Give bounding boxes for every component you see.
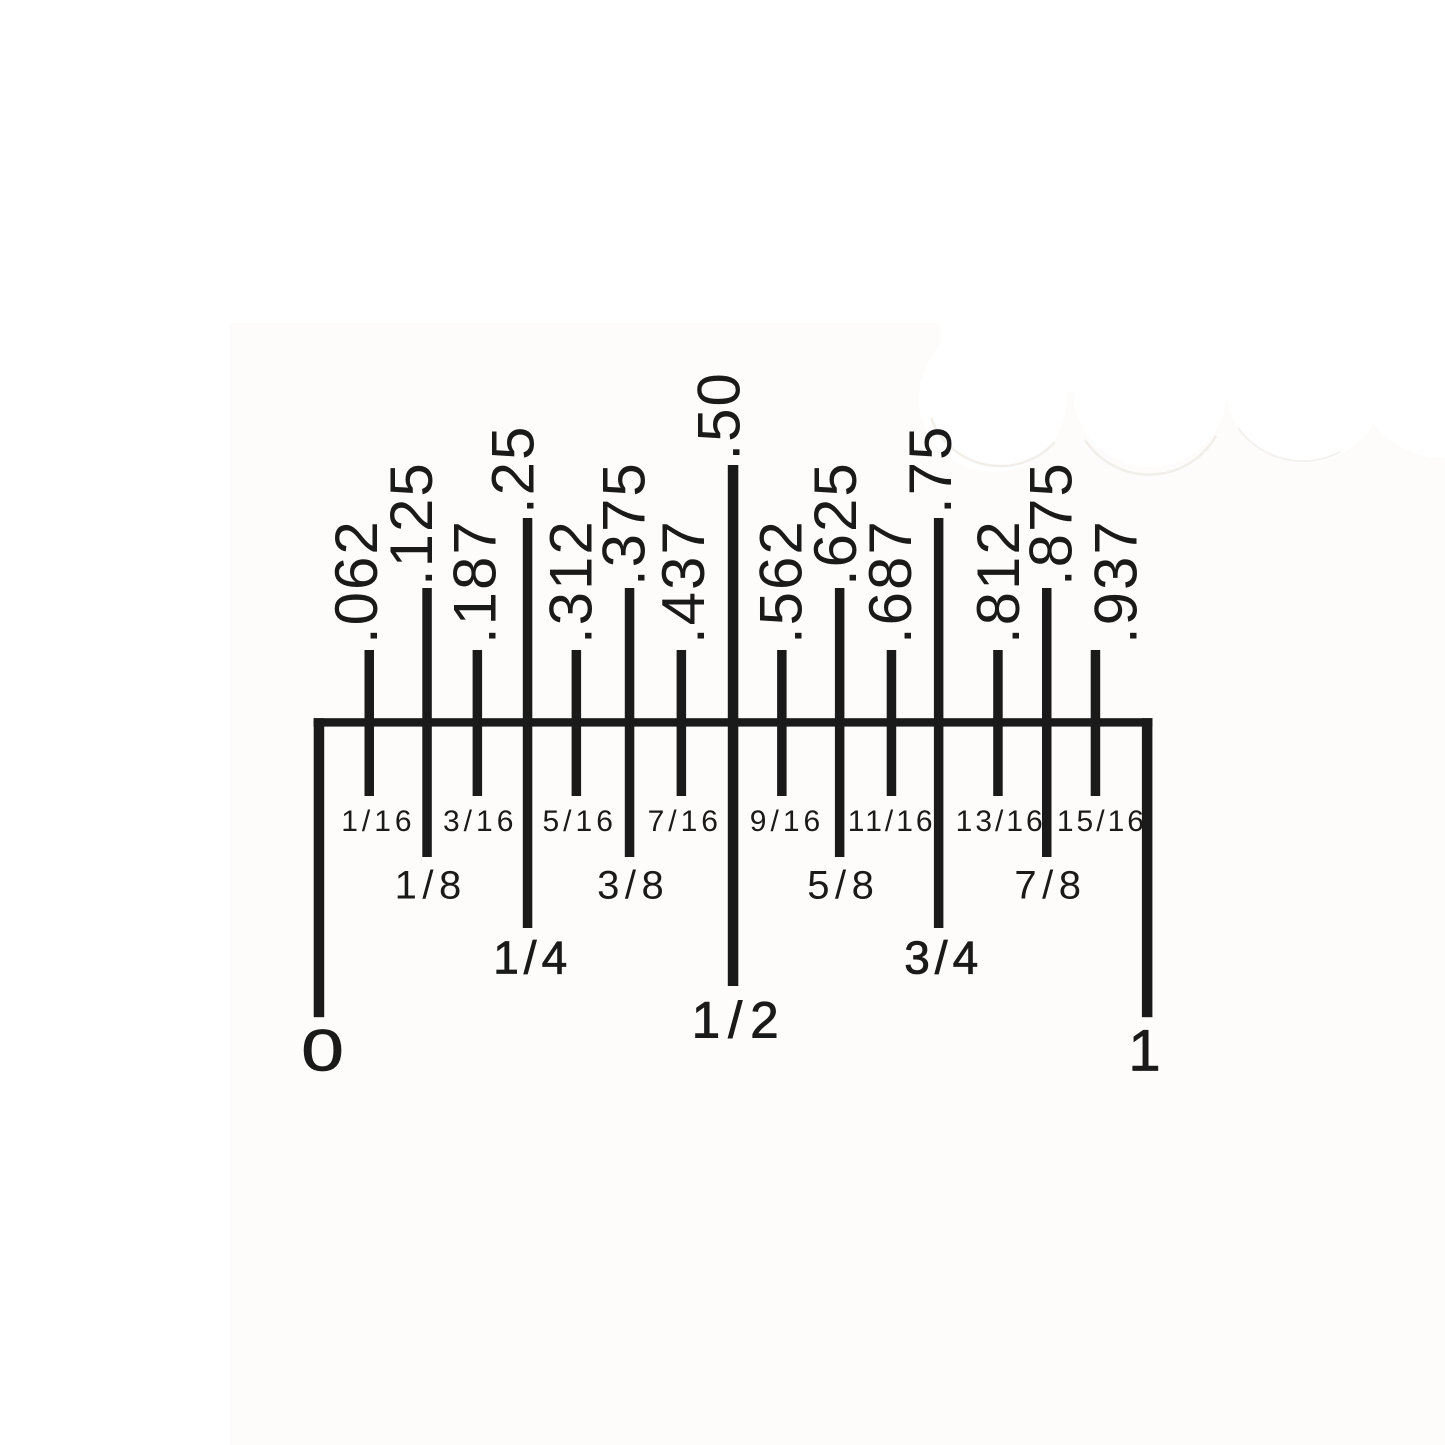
svg-text:.187: .187 [442,519,509,644]
svg-text:3/16: 3/16 [443,805,517,838]
svg-text:.25: .25 [480,425,547,514]
svg-text:.375: .375 [591,461,658,586]
svg-text:.75: .75 [897,425,964,514]
svg-text:1/8: 1/8 [395,864,467,908]
svg-text:.937: .937 [1082,519,1149,644]
svg-text:.875: .875 [1018,461,1085,586]
svg-text:.687: .687 [857,519,924,644]
svg-text:1: 1 [1128,1019,1160,1084]
svg-text:7/16: 7/16 [648,805,722,838]
svg-text:.50: .50 [686,371,753,460]
svg-text:3/8: 3/8 [597,864,669,908]
svg-text:1/4: 1/4 [493,932,572,984]
svg-text:3/4: 3/4 [904,932,983,984]
svg-text:5/8: 5/8 [807,864,879,908]
svg-text:9/16: 9/16 [750,805,824,838]
svg-text:.125: .125 [378,461,445,586]
svg-text:0: 0 [301,1019,344,1083]
svg-text:15/16: 15/16 [1057,805,1147,838]
svg-text:1/16: 1/16 [341,805,415,838]
svg-text:1/2: 1/2 [692,992,787,1049]
svg-text:5/16: 5/16 [543,805,617,838]
svg-text:13/16: 13/16 [956,805,1046,838]
svg-text:11/16: 11/16 [848,805,936,838]
svg-text:7/8: 7/8 [1014,864,1086,908]
svg-text:.437: .437 [650,519,717,644]
